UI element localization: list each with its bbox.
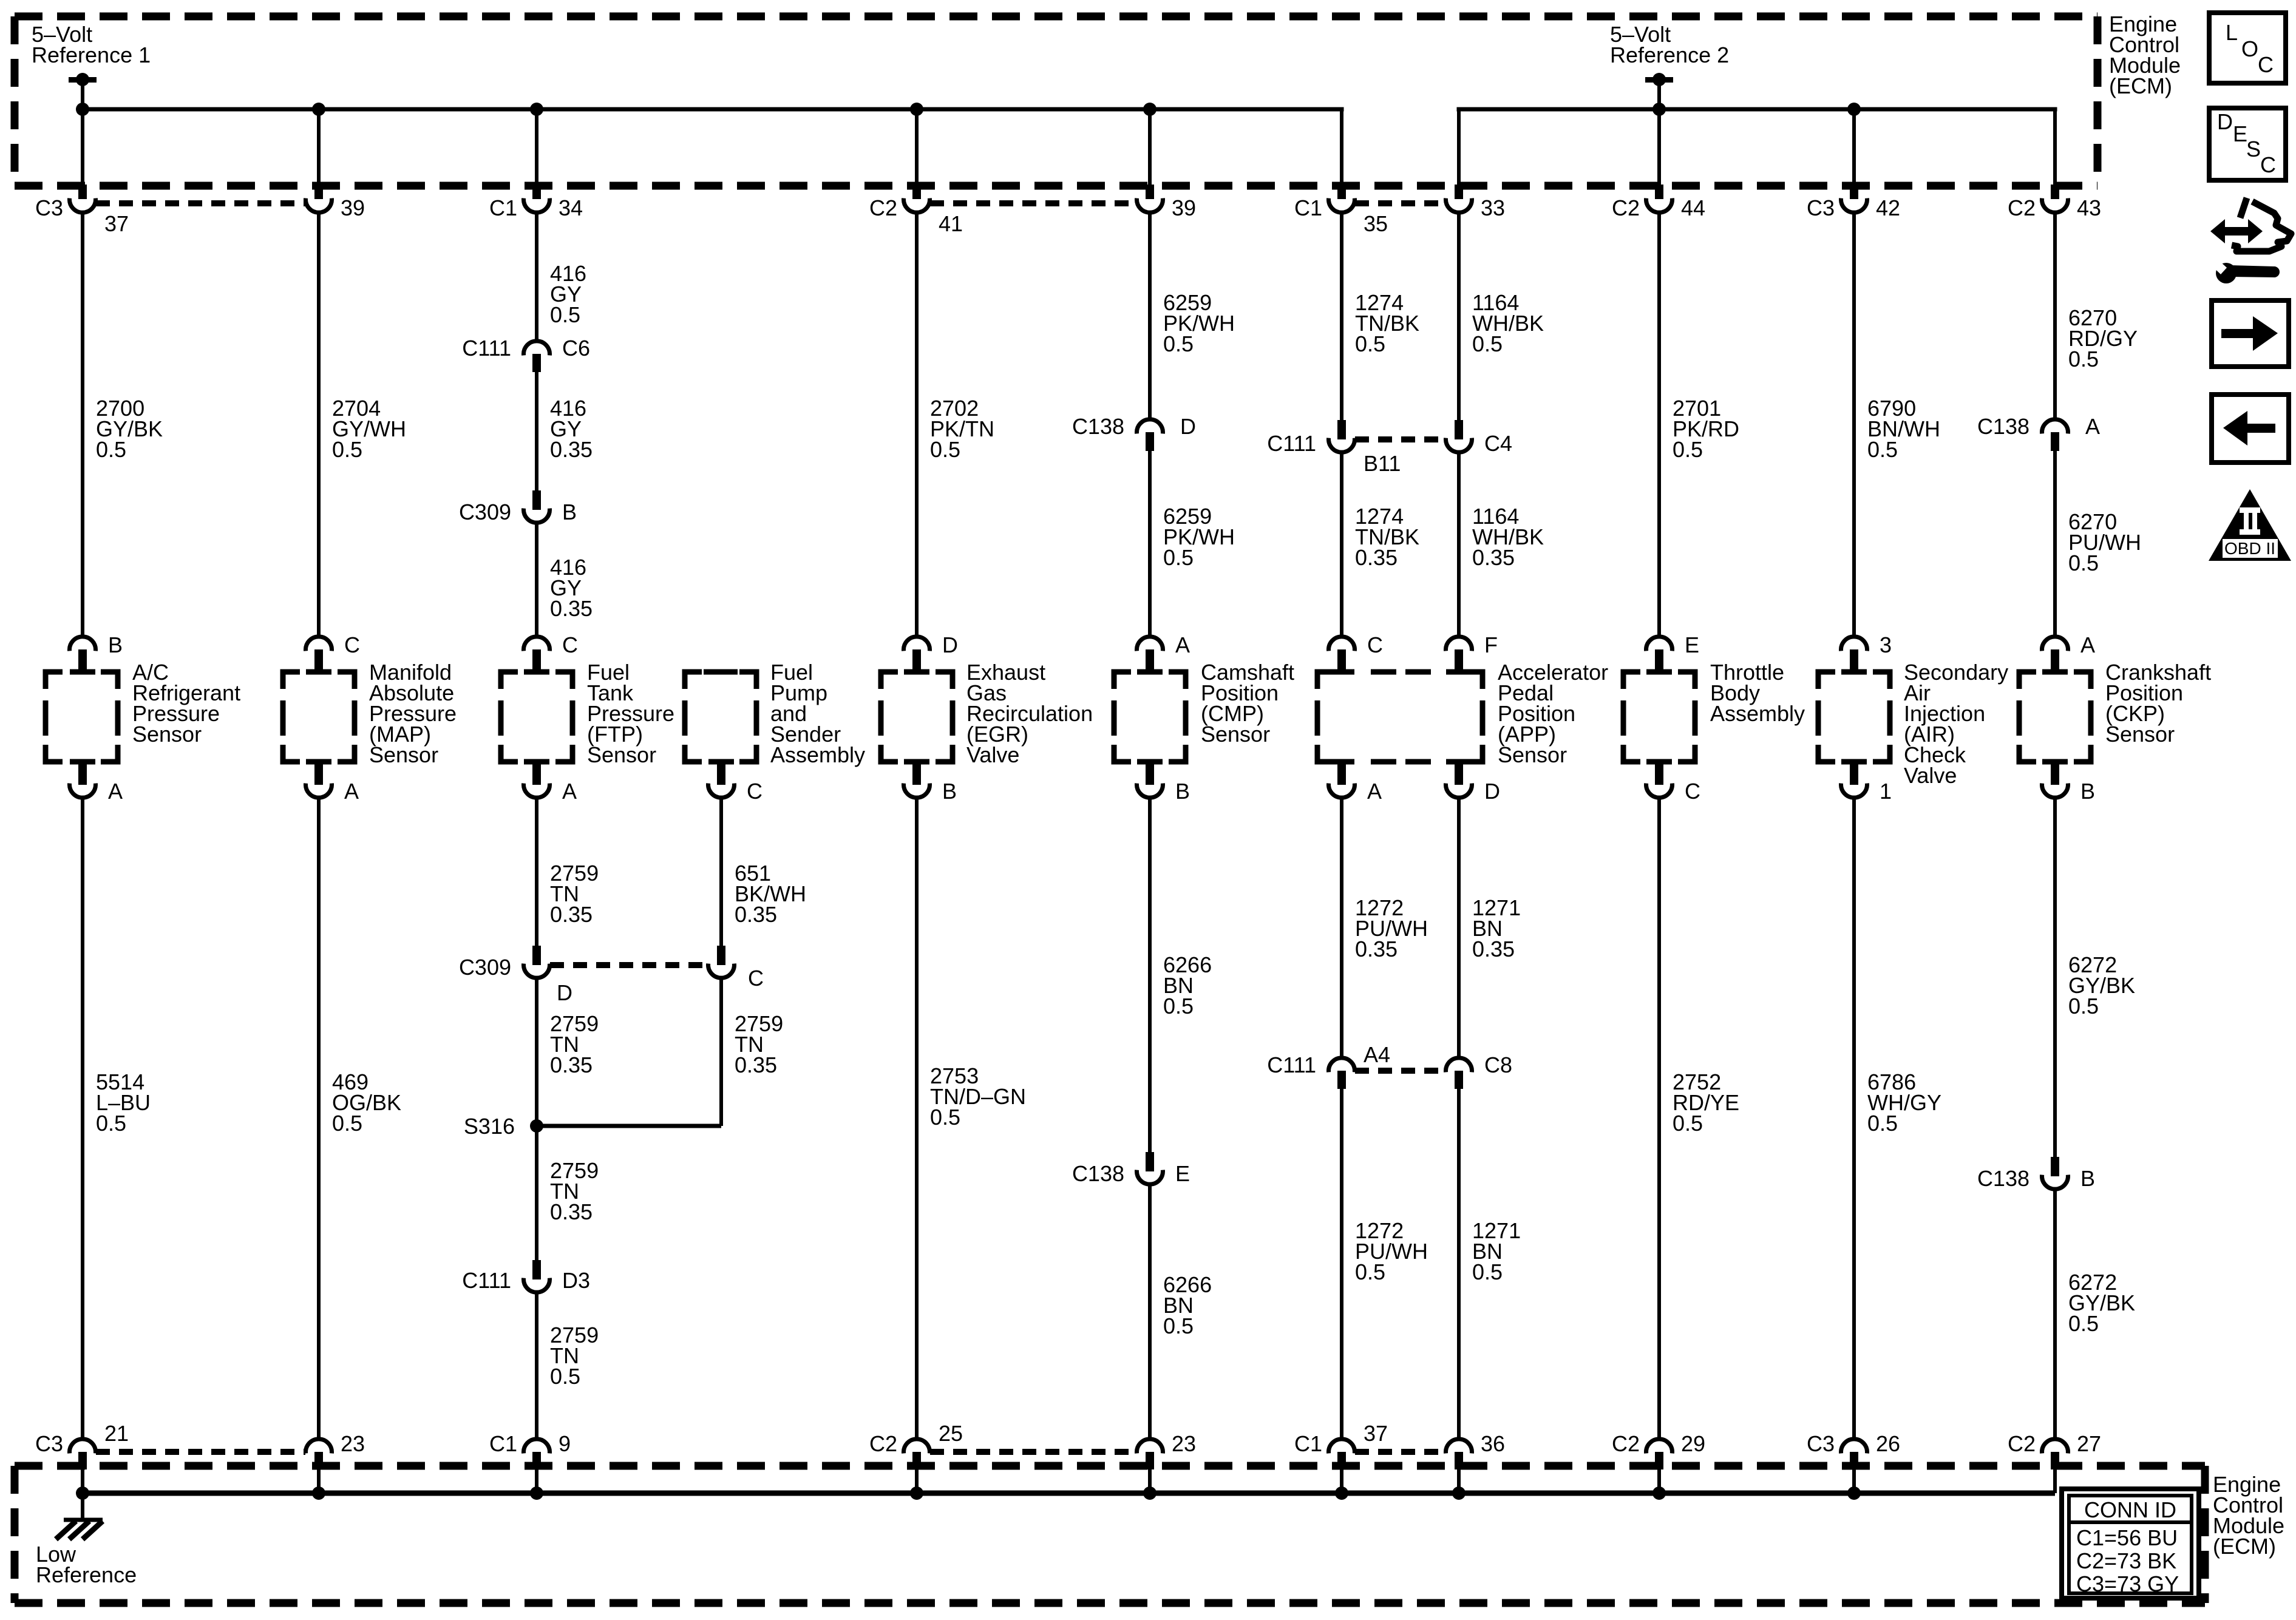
svg-text:D: D bbox=[1180, 414, 1196, 439]
svg-text:B: B bbox=[2080, 1166, 2095, 1191]
svg-text:A: A bbox=[1367, 779, 1382, 804]
svg-text:0.5: 0.5 bbox=[1472, 331, 1503, 356]
svg-text:0.5: 0.5 bbox=[1472, 1259, 1503, 1284]
svg-text:Assembly: Assembly bbox=[770, 742, 865, 767]
svg-text:Reference 2: Reference 2 bbox=[1610, 42, 1729, 67]
svg-text:E: E bbox=[1685, 632, 1699, 657]
svg-text:C6: C6 bbox=[562, 336, 590, 361]
svg-text:C1: C1 bbox=[1294, 195, 1322, 220]
svg-text:0.5: 0.5 bbox=[2068, 347, 2099, 371]
svg-text:27: 27 bbox=[2077, 1431, 2101, 1456]
svg-text:Valve: Valve bbox=[966, 742, 1019, 767]
svg-text:0.5: 0.5 bbox=[1867, 1111, 1898, 1136]
svg-text:0.35: 0.35 bbox=[550, 1199, 593, 1224]
svg-text:23: 23 bbox=[1172, 1431, 1196, 1456]
svg-text:0.5: 0.5 bbox=[2068, 1311, 2099, 1336]
svg-text:B11: B11 bbox=[1364, 451, 1401, 476]
svg-text:0.35: 0.35 bbox=[1472, 937, 1515, 961]
svg-text:25: 25 bbox=[939, 1421, 963, 1446]
svg-text:L: L bbox=[2226, 20, 2238, 45]
svg-text:C: C bbox=[1685, 779, 1700, 804]
svg-text:43: 43 bbox=[2077, 195, 2101, 220]
svg-text:B: B bbox=[108, 632, 123, 657]
svg-text:0.5: 0.5 bbox=[550, 1364, 580, 1389]
svg-text:29: 29 bbox=[1681, 1431, 1705, 1456]
svg-text:0.35: 0.35 bbox=[735, 902, 777, 927]
svg-text:O: O bbox=[2241, 36, 2258, 61]
svg-text:Reference 1: Reference 1 bbox=[32, 42, 151, 67]
svg-text:CONN ID: CONN ID bbox=[2084, 1497, 2176, 1522]
svg-text:0.5: 0.5 bbox=[96, 1111, 126, 1136]
svg-text:A: A bbox=[562, 779, 577, 804]
svg-text:Sensor: Sensor bbox=[1498, 742, 1567, 767]
svg-text:B: B bbox=[942, 779, 957, 804]
svg-text:B: B bbox=[2080, 779, 2095, 804]
svg-text:0.5: 0.5 bbox=[2068, 994, 2099, 1018]
svg-text:0.5: 0.5 bbox=[96, 437, 126, 462]
svg-text:35: 35 bbox=[1364, 211, 1388, 236]
svg-text:C138: C138 bbox=[1072, 414, 1124, 439]
svg-text:0.5: 0.5 bbox=[332, 1111, 362, 1136]
svg-text:0.5: 0.5 bbox=[1163, 1313, 1194, 1338]
svg-text:Sensor: Sensor bbox=[1201, 722, 1270, 747]
svg-text:A: A bbox=[2085, 414, 2100, 439]
svg-text:Assembly: Assembly bbox=[1710, 701, 1805, 726]
svg-text:0.5: 0.5 bbox=[1355, 1259, 1385, 1284]
svg-text:0.35: 0.35 bbox=[550, 1052, 593, 1077]
svg-text:C111: C111 bbox=[1267, 1052, 1316, 1077]
svg-text:0.5: 0.5 bbox=[1163, 545, 1194, 570]
svg-text:0.5: 0.5 bbox=[930, 1105, 960, 1130]
svg-text:C138: C138 bbox=[1977, 1166, 2029, 1191]
svg-text:C1=56 BU: C1=56 BU bbox=[2076, 1525, 2178, 1550]
svg-text:S316: S316 bbox=[464, 1114, 515, 1139]
svg-text:C8: C8 bbox=[1484, 1052, 1512, 1077]
svg-text:0.5: 0.5 bbox=[332, 437, 362, 462]
svg-text:C138: C138 bbox=[1072, 1161, 1124, 1186]
svg-text:C: C bbox=[747, 779, 763, 804]
svg-text:C: C bbox=[562, 632, 578, 657]
svg-text:C2: C2 bbox=[869, 195, 897, 220]
svg-text:A: A bbox=[344, 779, 359, 804]
svg-text:0.5: 0.5 bbox=[1673, 437, 1703, 462]
svg-text:(ECM): (ECM) bbox=[2213, 1534, 2276, 1559]
svg-text:36: 36 bbox=[1481, 1431, 1505, 1456]
svg-text:39: 39 bbox=[1172, 195, 1196, 220]
svg-text:0.35: 0.35 bbox=[550, 902, 593, 927]
svg-text:0.35: 0.35 bbox=[1472, 545, 1515, 570]
svg-text:C1: C1 bbox=[489, 195, 517, 220]
svg-text:B: B bbox=[562, 500, 577, 524]
svg-text:D: D bbox=[942, 632, 958, 657]
svg-text:C2: C2 bbox=[2008, 195, 2036, 220]
svg-text:42: 42 bbox=[1876, 195, 1900, 220]
svg-text:C: C bbox=[748, 966, 764, 991]
svg-text:Sensor: Sensor bbox=[132, 722, 202, 747]
svg-text:37: 37 bbox=[104, 211, 129, 236]
svg-text:C4: C4 bbox=[1484, 431, 1512, 456]
svg-text:E: E bbox=[1175, 1161, 1190, 1186]
svg-text:0.35: 0.35 bbox=[1355, 937, 1398, 961]
svg-text:21: 21 bbox=[104, 1421, 129, 1446]
svg-text:23: 23 bbox=[341, 1431, 365, 1456]
svg-text:A: A bbox=[108, 779, 123, 804]
svg-text:Valve: Valve bbox=[1904, 763, 1957, 788]
svg-text:C2: C2 bbox=[869, 1431, 897, 1456]
svg-text:C111: C111 bbox=[462, 1268, 511, 1293]
svg-text:0.5: 0.5 bbox=[1163, 331, 1194, 356]
svg-text:0.5: 0.5 bbox=[1867, 437, 1898, 462]
svg-text:F: F bbox=[1484, 632, 1498, 657]
svg-text:C2: C2 bbox=[2008, 1431, 2036, 1456]
svg-text:(ECM): (ECM) bbox=[2109, 73, 2172, 98]
svg-text:A: A bbox=[1175, 632, 1190, 657]
svg-text:0.35: 0.35 bbox=[735, 1052, 777, 1077]
svg-text:D: D bbox=[2217, 109, 2233, 134]
svg-text:S: S bbox=[2246, 137, 2261, 161]
svg-text:0.5: 0.5 bbox=[930, 437, 960, 462]
svg-text:C111: C111 bbox=[1267, 431, 1316, 456]
svg-text:1: 1 bbox=[1880, 779, 1892, 804]
svg-text:B: B bbox=[1175, 779, 1190, 804]
svg-text:E: E bbox=[2233, 121, 2247, 146]
svg-text:9: 9 bbox=[559, 1431, 571, 1456]
svg-text:Reference: Reference bbox=[36, 1562, 137, 1587]
svg-text:41: 41 bbox=[939, 211, 963, 236]
svg-text:D: D bbox=[557, 980, 572, 1005]
svg-text:C2=73 BK: C2=73 BK bbox=[2076, 1548, 2176, 1573]
svg-text:26: 26 bbox=[1876, 1431, 1900, 1456]
svg-text:C: C bbox=[2260, 152, 2276, 177]
svg-text:3: 3 bbox=[1880, 632, 1892, 657]
svg-text:Sensor: Sensor bbox=[369, 742, 438, 767]
svg-text:C2: C2 bbox=[1612, 1431, 1640, 1456]
svg-text:C: C bbox=[1367, 632, 1383, 657]
svg-text:44: 44 bbox=[1681, 195, 1705, 220]
svg-text:A: A bbox=[2080, 632, 2095, 657]
svg-text:39: 39 bbox=[341, 195, 365, 220]
svg-text:C3: C3 bbox=[1807, 195, 1835, 220]
svg-text:0.5: 0.5 bbox=[2068, 551, 2099, 575]
svg-text:C111: C111 bbox=[462, 336, 511, 361]
svg-text:C3=73 GY: C3=73 GY bbox=[2076, 1571, 2179, 1596]
svg-text:C3: C3 bbox=[1807, 1431, 1835, 1456]
svg-text:37: 37 bbox=[1364, 1421, 1388, 1446]
svg-text:0.5: 0.5 bbox=[1355, 331, 1385, 356]
svg-text:C309: C309 bbox=[459, 500, 511, 524]
svg-text:0.5: 0.5 bbox=[1163, 994, 1194, 1018]
svg-text:C309: C309 bbox=[459, 955, 511, 980]
svg-text:0.35: 0.35 bbox=[550, 437, 593, 462]
svg-text:D3: D3 bbox=[562, 1268, 590, 1293]
svg-text:Sensor: Sensor bbox=[587, 742, 656, 767]
svg-text:C138: C138 bbox=[1977, 414, 2029, 439]
svg-text:0.5: 0.5 bbox=[550, 302, 580, 327]
svg-text:C1: C1 bbox=[1294, 1431, 1322, 1456]
svg-text:A4: A4 bbox=[1364, 1042, 1390, 1067]
svg-text:OBD II: OBD II bbox=[2224, 539, 2275, 558]
svg-text:34: 34 bbox=[559, 195, 583, 220]
svg-text:C3: C3 bbox=[35, 195, 63, 220]
svg-text:33: 33 bbox=[1481, 195, 1505, 220]
svg-text:C: C bbox=[2258, 52, 2274, 77]
svg-text:0.5: 0.5 bbox=[1673, 1111, 1703, 1136]
svg-text:C2: C2 bbox=[1612, 195, 1640, 220]
svg-text:D: D bbox=[1484, 779, 1500, 804]
svg-text:0.35: 0.35 bbox=[550, 596, 593, 621]
svg-text:C1: C1 bbox=[489, 1431, 517, 1456]
svg-text:C3: C3 bbox=[35, 1431, 63, 1456]
svg-text:0.35: 0.35 bbox=[1355, 545, 1398, 570]
svg-text:Sensor: Sensor bbox=[2105, 722, 2175, 747]
svg-text:C: C bbox=[344, 632, 360, 657]
